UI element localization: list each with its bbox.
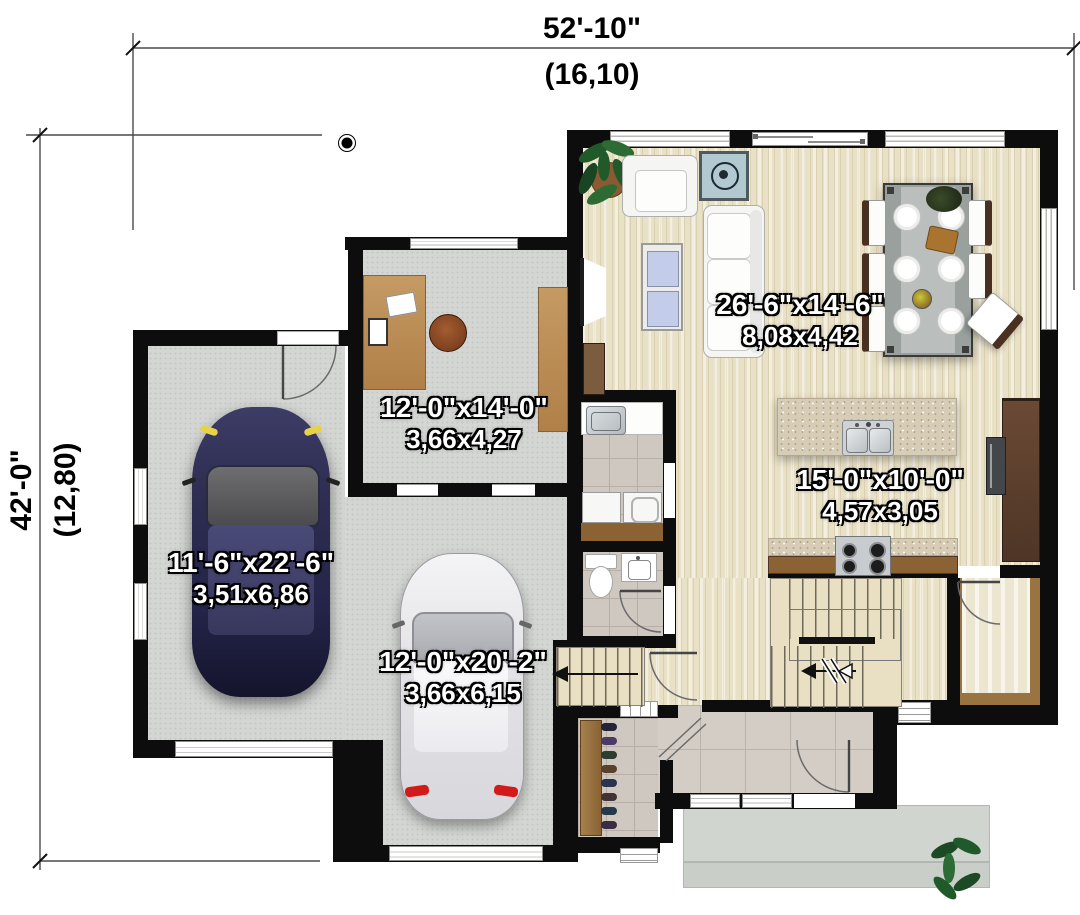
room-size-metric: 3,51x6,86 xyxy=(168,579,334,610)
garage-door-left xyxy=(175,741,333,757)
room-size-metric: 4,57x3,05 xyxy=(796,496,964,527)
room-size-metric: 3,66x4,27 xyxy=(380,424,548,455)
laundry-sink xyxy=(586,406,626,435)
centerpiece-floral xyxy=(926,186,962,212)
dim-height-metric: (12,80) xyxy=(49,442,83,537)
cooktop xyxy=(835,536,891,576)
place-setting xyxy=(893,255,921,283)
table-corner xyxy=(962,187,969,194)
dim-height-imperial: 42'-0" xyxy=(5,449,39,530)
entry-floor xyxy=(655,705,873,793)
wall-oven xyxy=(986,437,1006,495)
office-stool xyxy=(429,314,467,352)
room-label-garage-bay2: 12'-0"x20'-2" 3,66x6,15 xyxy=(379,646,547,709)
patio-slider-door xyxy=(752,132,868,146)
dining-chair xyxy=(968,200,992,246)
media-cabinet xyxy=(583,343,605,395)
window-garage-1 xyxy=(134,468,147,525)
steps-side-exit xyxy=(898,702,931,723)
table-corner xyxy=(962,346,969,353)
reference-dot xyxy=(342,138,353,149)
washer xyxy=(582,492,621,523)
room-label-garage-bay1: 11'-6"x22'-6" 3,51x6,86 xyxy=(168,547,334,610)
pantry-door-opening xyxy=(958,566,1000,578)
table-corner xyxy=(887,187,894,194)
basement-stair-treads xyxy=(557,648,646,707)
garage-door-right xyxy=(389,846,543,861)
window-office xyxy=(410,238,518,249)
wall-right xyxy=(1040,130,1058,578)
sink-basin xyxy=(846,428,868,453)
entry-sidelight-1 xyxy=(690,794,740,808)
kitchen-tall-cabinets xyxy=(1002,398,1040,562)
main-staircase xyxy=(770,578,902,707)
basement-staircase xyxy=(556,647,645,706)
place-setting xyxy=(893,307,921,335)
leaf xyxy=(951,869,983,894)
reference-dot-ring xyxy=(339,135,356,152)
burner xyxy=(842,543,857,558)
room-size-imperial: 26'-6"x14'-6" xyxy=(716,289,884,321)
faucet-icon xyxy=(855,423,859,427)
notepad xyxy=(368,318,388,346)
office-opening-2 xyxy=(492,484,535,496)
stair-treads-lower xyxy=(771,646,875,708)
laundry-shelf xyxy=(581,523,663,541)
salad-dish xyxy=(912,289,932,309)
place-setting xyxy=(937,307,965,335)
wall-garage-pier xyxy=(333,740,383,862)
wall-kitchen-bottom-2 xyxy=(1000,565,1040,578)
pantry-floor xyxy=(952,578,1040,705)
room-size-imperial: 12'-0"x14'-0" xyxy=(380,392,548,424)
floor-plan: 52'-10" (16,10) 42'-0" (12,80) 26'-6"x14… xyxy=(0,0,1080,915)
room-size-metric: 3,66x6,15 xyxy=(379,678,547,709)
faucet-icon xyxy=(866,422,871,427)
dryer xyxy=(623,492,662,523)
white-car-taillight-left xyxy=(404,784,429,797)
room-size-imperial: 12'-0"x20'-2" xyxy=(379,646,547,678)
island-sink xyxy=(842,420,894,456)
leaf xyxy=(943,853,955,883)
faucet-icon xyxy=(876,423,880,427)
armchair-cushion xyxy=(635,170,687,212)
wall-pantry-bottom xyxy=(947,705,1058,725)
burner xyxy=(842,559,857,574)
entry-sidelight-2 xyxy=(742,794,792,808)
room-size-imperial: 11'-6"x22'-6" xyxy=(168,547,334,579)
coffee-table xyxy=(641,243,683,331)
window-dining xyxy=(885,131,1005,147)
place-setting xyxy=(893,203,921,231)
faucet-icon xyxy=(636,556,640,560)
room-label-living-dining: 26'-6"x14'-6" 8,08x4,42 xyxy=(716,289,884,352)
table-corner xyxy=(887,346,894,353)
office-opening-1 xyxy=(397,484,438,496)
wall-garage-left xyxy=(133,330,148,758)
bath-door-opening xyxy=(664,586,675,634)
wood-stove xyxy=(699,151,749,201)
wall-office-left xyxy=(348,237,363,497)
tv-wall-strip xyxy=(580,258,584,326)
oven-handle xyxy=(990,444,992,488)
tv xyxy=(583,258,606,326)
room-label-kitchen: 15'-0"x10'-0" 4,57x3,05 xyxy=(796,464,964,527)
window-garage-2 xyxy=(134,583,147,640)
stove-core xyxy=(719,170,728,179)
vanity-basin xyxy=(628,560,651,580)
sink-basin xyxy=(591,412,621,431)
steps-exterior xyxy=(620,848,658,863)
table-glass-2 xyxy=(647,291,679,327)
stair-rail xyxy=(799,637,875,644)
burner xyxy=(869,542,886,559)
closet-shoe-rack xyxy=(580,720,602,836)
wall-pantry-left xyxy=(947,578,960,705)
dim-width-metric: (16,10) xyxy=(544,58,639,92)
room-size-metric: 8,08x4,42 xyxy=(716,321,884,352)
front-door-opening xyxy=(794,794,855,808)
place-setting xyxy=(937,255,965,283)
blue-car-windshield xyxy=(206,465,320,527)
bath-vanity xyxy=(621,553,657,582)
garage-side-door-opening xyxy=(277,331,339,345)
plant-porch xyxy=(926,836,990,908)
dining-chair xyxy=(862,200,886,246)
wall-office-bottom xyxy=(357,483,572,497)
wall-laundry-bath xyxy=(567,540,676,552)
wall-right-pantry xyxy=(1040,578,1058,725)
sink-basin xyxy=(869,428,891,453)
dim-width-imperial: 52'-10" xyxy=(543,12,641,46)
white-car-taillight-right xyxy=(493,784,518,797)
window-right-wall xyxy=(1041,208,1057,330)
room-size-imperial: 15'-0"x10'-0" xyxy=(796,464,964,496)
armchair xyxy=(622,155,698,217)
leaf xyxy=(598,151,610,181)
leaf xyxy=(951,834,983,858)
toilet-bowl xyxy=(589,566,613,598)
sofa-cushion xyxy=(707,213,751,259)
dining-chair xyxy=(968,253,992,299)
laundry-door-opening xyxy=(664,463,675,518)
shoes xyxy=(601,723,618,833)
dryer-door xyxy=(631,497,659,523)
room-label-office: 12'-0"x14'-0" 3,66x4,27 xyxy=(380,392,548,455)
table-glass-1 xyxy=(647,251,679,287)
burner xyxy=(869,558,886,575)
